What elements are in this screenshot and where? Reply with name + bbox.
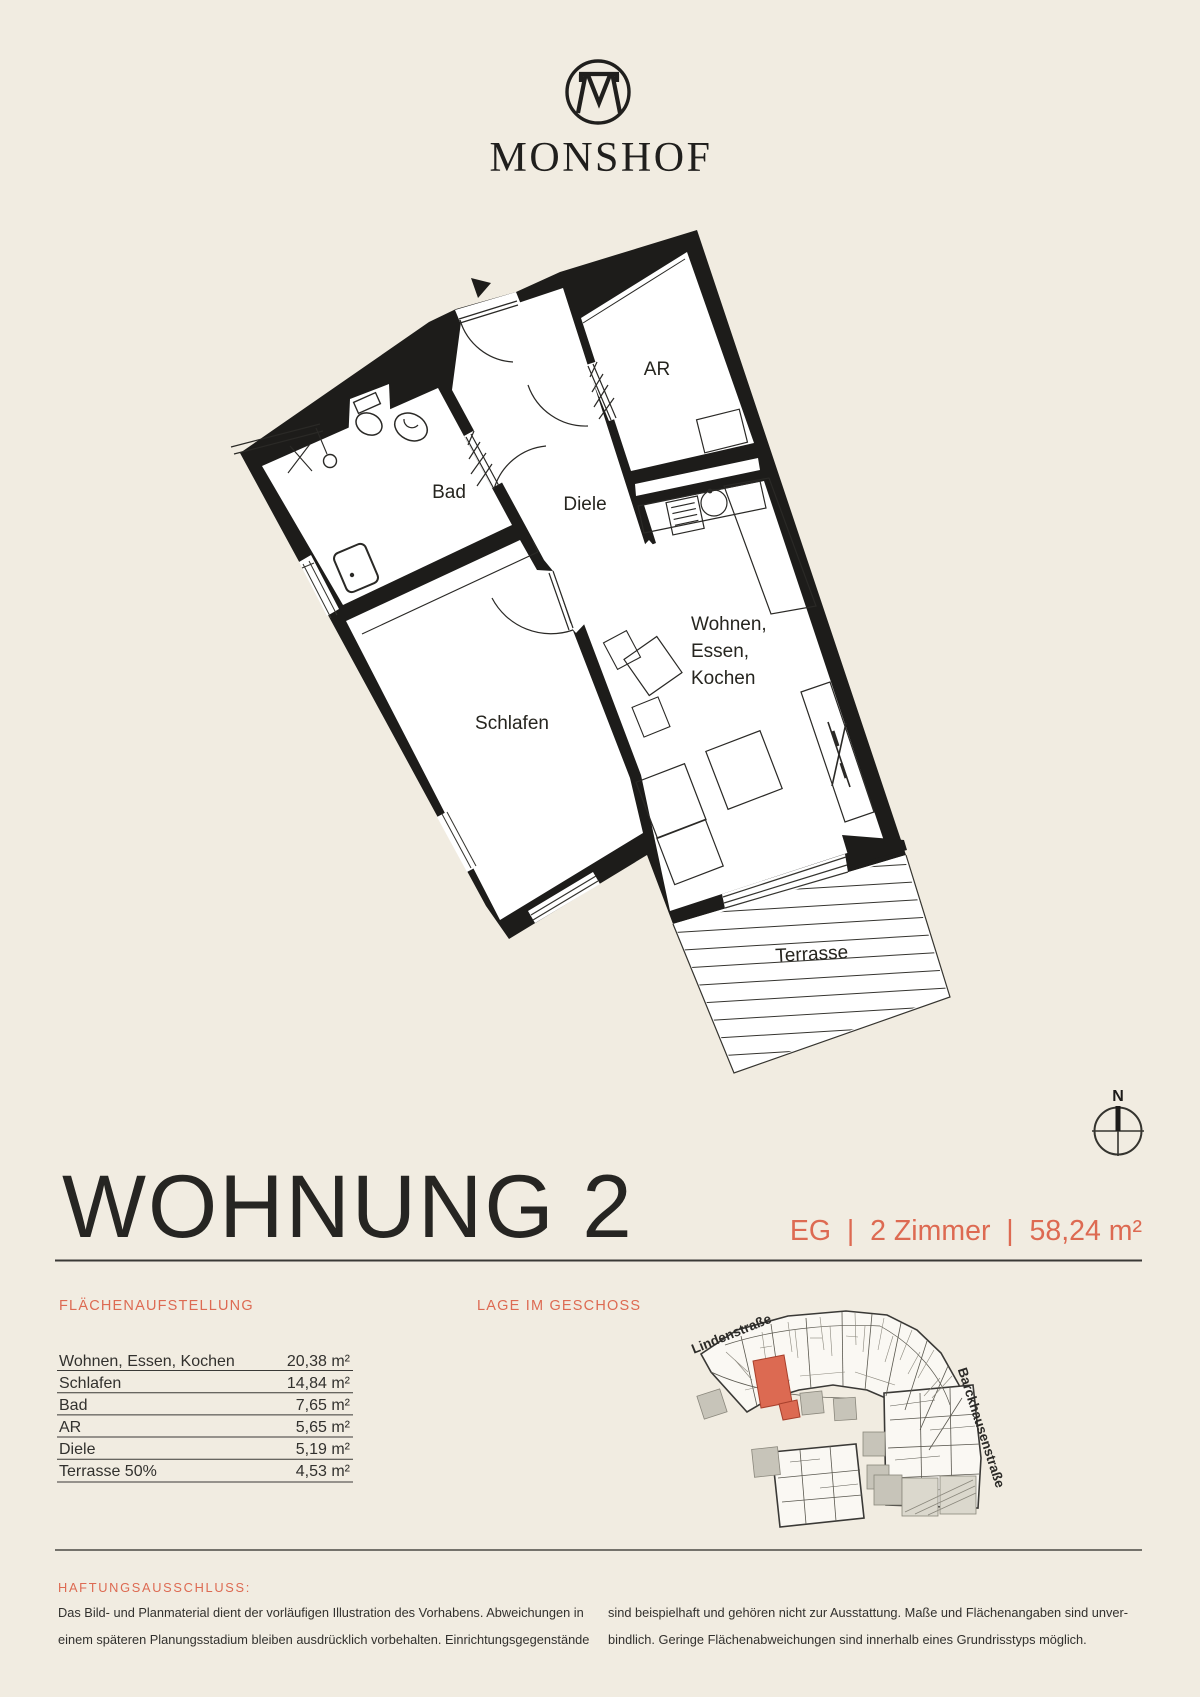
svg-text:Wohnen, Essen, Kochen: Wohnen, Essen, Kochen: [59, 1353, 235, 1370]
svg-text:bindlich. Geringe Flächenabwei: bindlich. Geringe Flächenabweichungen si…: [608, 1632, 1087, 1647]
svg-text:Terrasse 50%: Terrasse 50%: [59, 1463, 157, 1480]
svg-text:LAGE IM GESCHOSS: LAGE IM GESCHOSS: [477, 1298, 641, 1314]
svg-text:sind beispielhaft und gehören: sind beispielhaft und gehören nicht zur …: [608, 1605, 1128, 1620]
svg-text:Diele: Diele: [59, 1441, 96, 1458]
svg-text:4,53 m²: 4,53 m²: [296, 1463, 351, 1480]
svg-text:Schlafen: Schlafen: [59, 1375, 121, 1392]
svg-text:N: N: [1112, 1088, 1124, 1105]
svg-text:einem späteren Planungsstadium: einem späteren Planungsstadium bleiben a…: [58, 1632, 589, 1647]
svg-text:MONSHOF: MONSHOF: [490, 135, 713, 181]
svg-text:Wohnen,: Wohnen,: [691, 614, 767, 635]
svg-text:Bad: Bad: [59, 1397, 87, 1414]
svg-text:20,38 m²: 20,38 m²: [287, 1353, 351, 1370]
svg-text:AR: AR: [59, 1419, 81, 1436]
svg-text:14,84 m²: 14,84 m²: [287, 1375, 351, 1392]
svg-text:Terrasse: Terrasse: [775, 942, 849, 967]
svg-text:7,65 m²: 7,65 m²: [296, 1397, 351, 1414]
svg-text:Bad: Bad: [432, 482, 466, 503]
svg-text:Diele: Diele: [563, 494, 606, 515]
svg-text:FLÄCHENAUFSTELLUNG: FLÄCHENAUFSTELLUNG: [59, 1297, 254, 1314]
svg-text:Das Bild- und Planmaterial die: Das Bild- und Planmaterial dient der vor…: [58, 1605, 584, 1620]
svg-text:EG | 2 Zimmer | 58,24 m²: EG | 2 Zimmer | 58,24 m²: [790, 1215, 1142, 1247]
svg-text:5,65 m²: 5,65 m²: [296, 1419, 351, 1436]
svg-text:AR: AR: [644, 359, 670, 380]
svg-text:Schlafen: Schlafen: [475, 713, 549, 734]
svg-text:HAFTUNGSAUSSCHLUSS:: HAFTUNGSAUSSCHLUSS:: [58, 1580, 251, 1595]
svg-text:Essen,: Essen,: [691, 641, 749, 662]
svg-text:Kochen: Kochen: [691, 668, 755, 689]
svg-text:5,19 m²: 5,19 m²: [296, 1441, 351, 1458]
svg-text:WOHNUNG 2: WOHNUNG 2: [62, 1156, 634, 1256]
